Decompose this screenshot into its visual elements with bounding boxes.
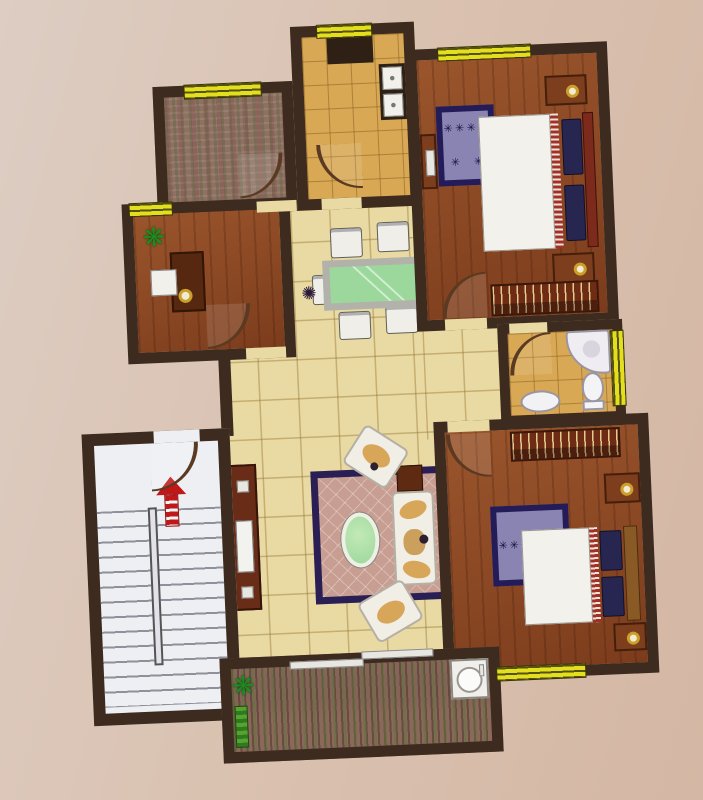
dining-chair <box>338 311 371 340</box>
rug-star-icon: ✳ <box>451 157 461 168</box>
dining-chair <box>385 305 418 334</box>
rug-star-icon: ✳ <box>455 123 465 134</box>
door-opening <box>256 200 296 213</box>
nightstand <box>613 622 647 651</box>
washer-controls <box>479 664 485 676</box>
sofa-cushion <box>397 497 429 523</box>
door-opening <box>321 197 361 210</box>
dining-chair <box>330 227 363 258</box>
lamp <box>573 262 587 276</box>
stair-steps <box>97 507 229 708</box>
nightstand <box>544 74 587 106</box>
side-table <box>396 465 423 492</box>
cabinet-item <box>237 480 250 493</box>
kitchen-door <box>316 143 363 190</box>
utility-room-door <box>238 152 284 198</box>
entry-door <box>150 441 200 491</box>
dresser-top <box>425 150 435 176</box>
bedroom1-door <box>441 272 488 319</box>
dining-accent-icon: ✺ <box>301 284 317 303</box>
study-window <box>129 202 171 216</box>
rug-star-icon: ✳ <box>509 540 519 551</box>
washing-machine <box>450 658 490 700</box>
study: ❋ <box>121 197 296 364</box>
washbasin <box>520 390 561 414</box>
stairwell <box>81 428 242 726</box>
nightstand <box>552 252 595 284</box>
bedroom-1: ✳ ✳ ✳ ✳ ✳ ✳ <box>405 41 619 332</box>
sofa <box>391 490 437 586</box>
bathroom-window <box>610 331 625 405</box>
door-opening <box>509 322 547 334</box>
corner-bathtub <box>565 329 611 375</box>
burner <box>383 93 404 117</box>
armchair-cushion <box>373 596 409 628</box>
dresser <box>420 134 438 190</box>
up-arrow-shaft <box>164 494 179 527</box>
toilet <box>581 372 604 403</box>
dining-chair <box>377 221 410 252</box>
utility-room <box>152 81 298 217</box>
bedroom2-door <box>446 433 492 479</box>
kitchen-window <box>317 24 371 38</box>
planter-box <box>234 706 249 749</box>
plant-icon: ❋ <box>142 224 165 251</box>
wardrobe <box>490 280 599 317</box>
bed <box>521 525 643 625</box>
floor-plan: ✺ <box>64 10 671 779</box>
study-door <box>206 303 252 349</box>
entry-door-opening <box>153 429 199 443</box>
sofa-cushion <box>401 558 432 580</box>
kitchen <box>290 22 422 211</box>
bedroom2-window <box>497 664 585 681</box>
person-head <box>419 534 428 543</box>
computer <box>150 269 177 296</box>
lamp <box>627 631 641 645</box>
pillow <box>564 184 586 241</box>
door-opening <box>447 420 489 433</box>
door-opening <box>445 318 487 331</box>
bathroom-door <box>508 332 552 376</box>
lamp <box>620 482 634 496</box>
bed <box>478 112 599 252</box>
rug-star-icon: ✳ <box>443 124 453 135</box>
tv <box>235 520 254 573</box>
lamp <box>566 84 580 98</box>
cabinet-item <box>241 586 254 599</box>
nightstand <box>604 472 641 504</box>
stove <box>379 63 407 120</box>
bathroom <box>497 319 626 426</box>
rug-star-icon: ✳ <box>498 541 508 552</box>
bed-mattress <box>478 114 556 252</box>
rug-star-icon: ✳ <box>466 123 476 134</box>
plant-icon: ❋ <box>232 672 255 699</box>
pillow <box>599 530 623 571</box>
pillow <box>561 118 583 175</box>
photo-background: ✺ <box>0 0 703 800</box>
headboard <box>623 525 641 621</box>
kitchen-sink <box>326 36 373 64</box>
door-opening <box>246 347 286 360</box>
pillow <box>601 576 625 617</box>
bedroom-2: ✳ ✳ ✳ ✳ ✳ ✳ <box>433 413 659 682</box>
wardrobe <box>510 427 621 462</box>
burner <box>382 66 403 90</box>
bed-mattress <box>521 527 593 625</box>
